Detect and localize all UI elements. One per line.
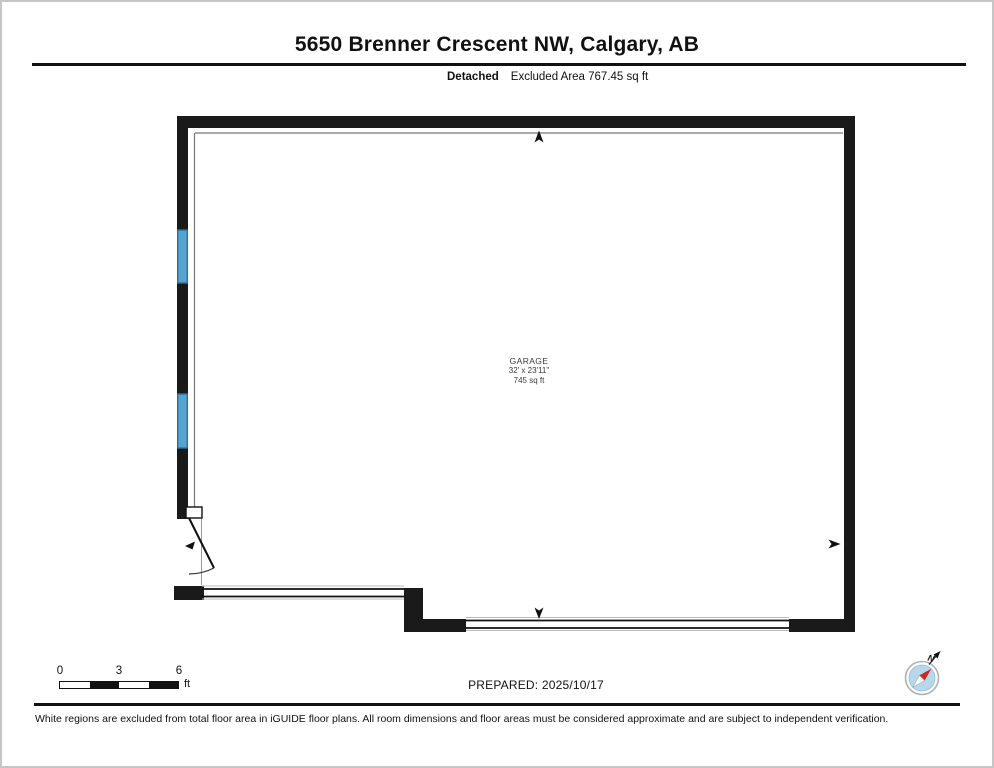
- window-icon: [178, 394, 188, 448]
- property-type-label: Detached: [447, 71, 499, 83]
- garage-door-upper: [202, 586, 404, 599]
- scale-bar-unit: ft: [184, 678, 190, 690]
- scale-bar: [59, 681, 179, 689]
- door-swing: [185, 507, 214, 574]
- garage-door-lower: [466, 618, 789, 631]
- scale-bar-segment: [60, 682, 90, 688]
- footer-divider: [34, 703, 960, 706]
- window-icon: [178, 230, 188, 283]
- room-label: GARAGE 32' x 23'11" 745 sq ft: [429, 356, 629, 385]
- excluded-area-label: Excluded Area 767.45 sq ft: [511, 71, 648, 83]
- room-name: GARAGE: [429, 356, 629, 366]
- scale-bar-segment: [149, 682, 179, 688]
- scale-bar-segment: [90, 682, 120, 688]
- room-area: 745 sq ft: [429, 376, 629, 386]
- compass-icon: N: [895, 644, 951, 702]
- floor-plan-page: 5650 Brenner Crescent NW, Calgary, AB De…: [0, 0, 994, 768]
- prepared-date: PREPARED: 2025/10/17: [431, 678, 641, 692]
- entrance-arrow-top-icon: [535, 131, 544, 143]
- room-dimensions: 32' x 23'11": [429, 366, 629, 376]
- disclaimer-text: White regions are excluded from total fl…: [35, 713, 975, 725]
- entrance-arrow-right-icon: [829, 540, 841, 549]
- scale-bar-segment: [119, 682, 149, 688]
- door-swing-arrow-icon: [185, 542, 195, 550]
- header-divider: [32, 63, 966, 66]
- scale-tick-0: 0: [53, 665, 67, 677]
- scale-tick-6: 6: [172, 665, 186, 677]
- plan-subtitle: DetachedExcluded Area 767.45 sq ft: [447, 71, 648, 83]
- scale-tick-3: 3: [112, 665, 126, 677]
- page-title: 5650 Brenner Crescent NW, Calgary, AB: [2, 33, 992, 57]
